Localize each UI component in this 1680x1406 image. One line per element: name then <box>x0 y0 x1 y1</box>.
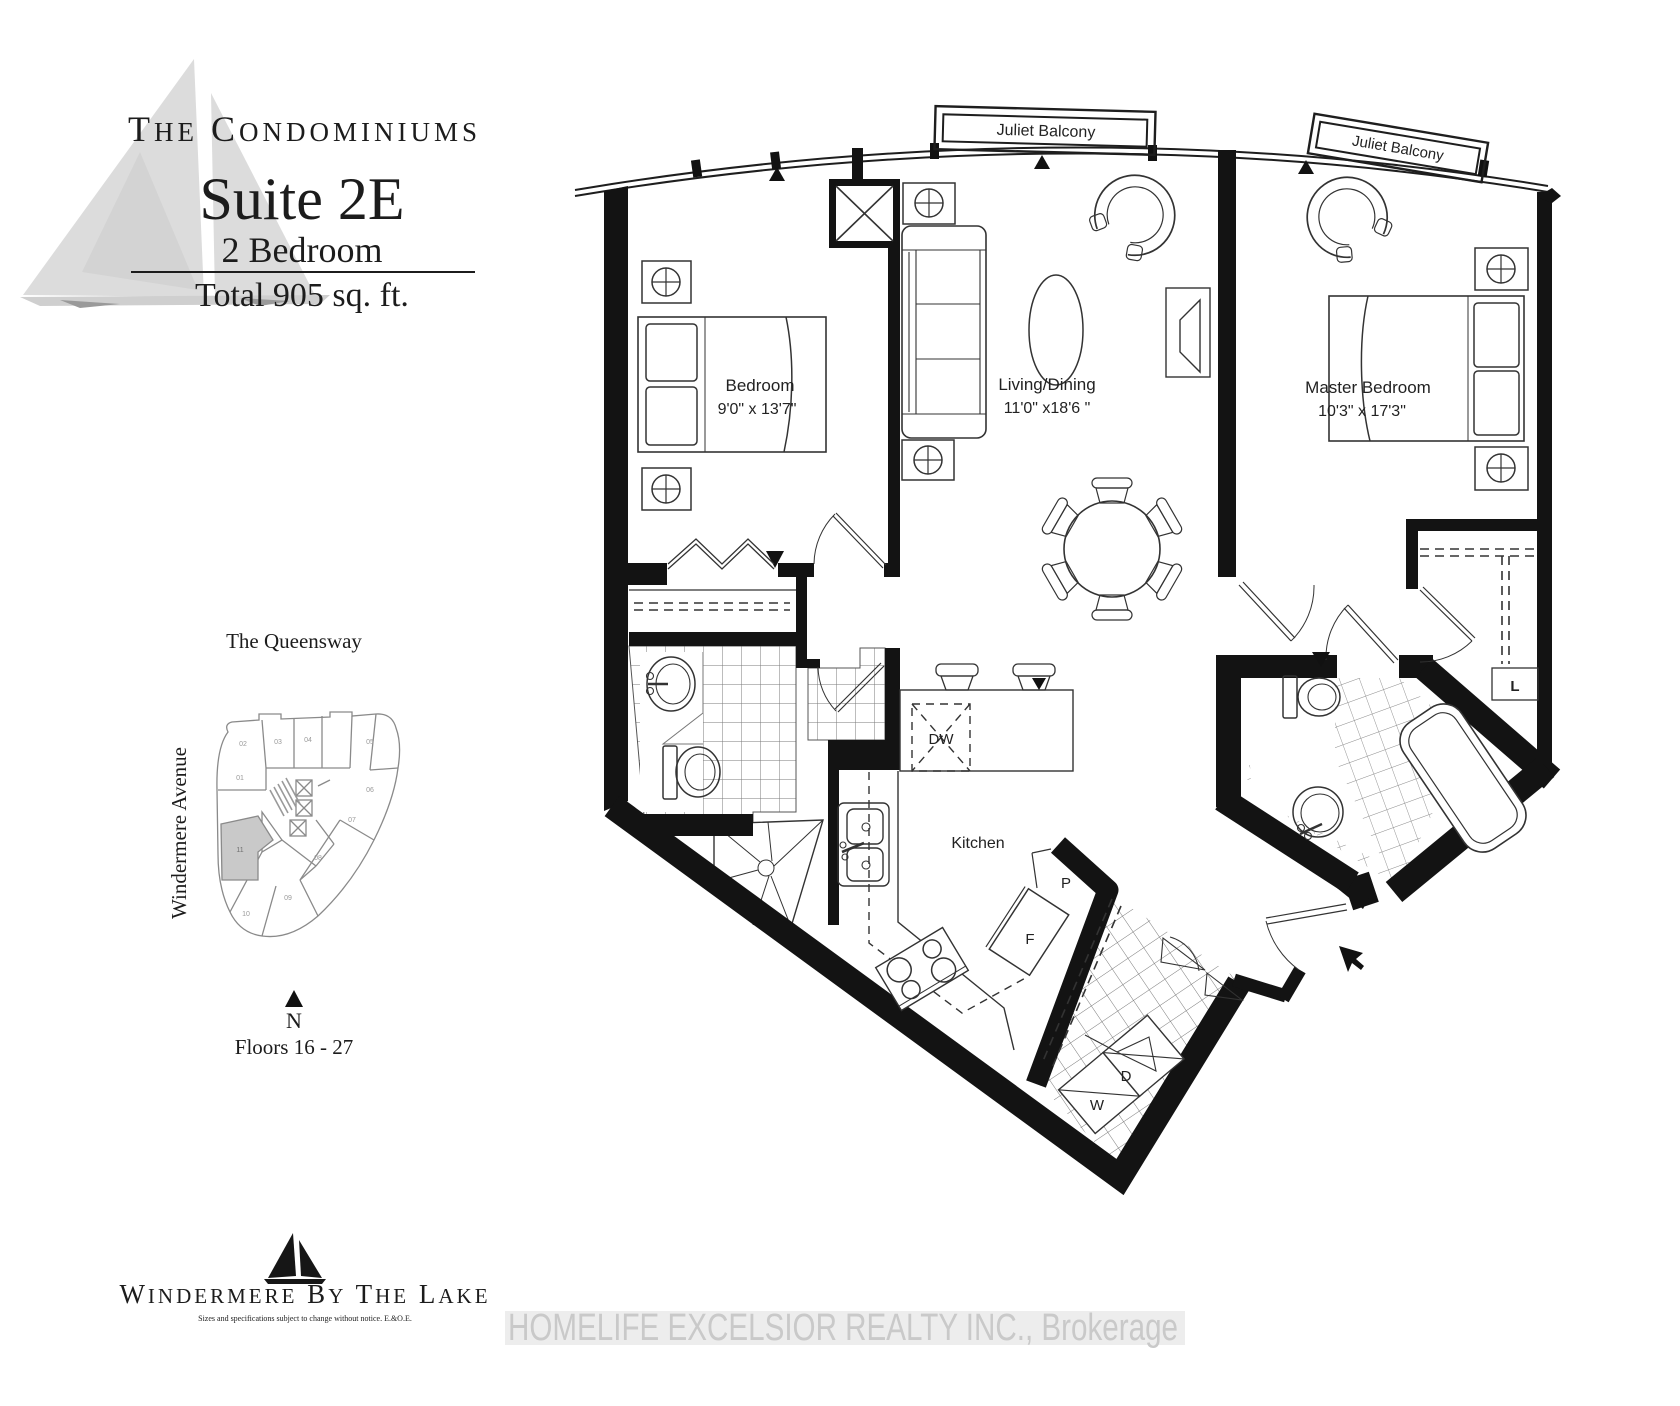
svg-text:WINDERMERE BY THE LAKE: WINDERMERE BY THE LAKE <box>119 1279 490 1309</box>
svg-text:06: 06 <box>366 787 374 794</box>
svg-text:05: 05 <box>366 739 374 746</box>
svg-text:11: 11 <box>236 847 243 854</box>
svg-text:N: N <box>286 1008 302 1033</box>
svg-text:Living/Dining: Living/Dining <box>998 375 1095 394</box>
svg-text:The Queensway: The Queensway <box>226 629 362 653</box>
svg-text:Floors 16 - 27: Floors 16 - 27 <box>235 1035 353 1059</box>
svg-text:Suite 2E: Suite 2E <box>200 166 405 232</box>
svg-text:DW: DW <box>929 731 955 748</box>
svg-text:Total 905 sq. ft.: Total 905 sq. ft. <box>195 277 409 314</box>
svg-text:Juliet Balcony: Juliet Balcony <box>996 122 1095 142</box>
svg-text:02: 02 <box>239 741 247 748</box>
svg-text:04: 04 <box>304 737 312 744</box>
svg-text:09: 09 <box>284 895 292 902</box>
svg-text:07: 07 <box>348 817 356 824</box>
svg-text:Windermere Avenue: Windermere Avenue <box>167 747 191 919</box>
svg-text:HOMELIFE EXCELSIOR REALTY INC.: HOMELIFE EXCELSIOR REALTY INC., Brokerag… <box>508 1307 1178 1349</box>
svg-text:11'0" x18'6 ": 11'0" x18'6 " <box>1004 400 1091 417</box>
svg-text:Juliet Balcony: Juliet Balcony <box>1351 132 1446 164</box>
svg-text:L: L <box>1510 678 1519 695</box>
svg-text:2 Bedroom: 2 Bedroom <box>222 230 383 270</box>
svg-text:Master Bedroom: Master Bedroom <box>1305 378 1431 397</box>
svg-text:9'0" x 13'7": 9'0" x 13'7" <box>718 401 797 418</box>
svg-text:03: 03 <box>274 739 282 746</box>
svg-text:Kitchen: Kitchen <box>951 835 1004 852</box>
svg-text:08: 08 <box>314 855 322 862</box>
svg-text:P: P <box>1061 875 1071 892</box>
svg-text:W: W <box>1090 1097 1105 1114</box>
svg-text:01: 01 <box>236 775 244 782</box>
svg-text:Bedroom: Bedroom <box>726 376 795 395</box>
svg-text:10'3" x 17'3": 10'3" x 17'3" <box>1318 403 1406 420</box>
svg-text:D: D <box>1121 1068 1132 1085</box>
svg-text:Sizes and specifications subje: Sizes and specifications subject to chan… <box>198 1314 412 1323</box>
svg-text:10: 10 <box>242 911 250 918</box>
svg-text:F: F <box>1025 931 1034 948</box>
